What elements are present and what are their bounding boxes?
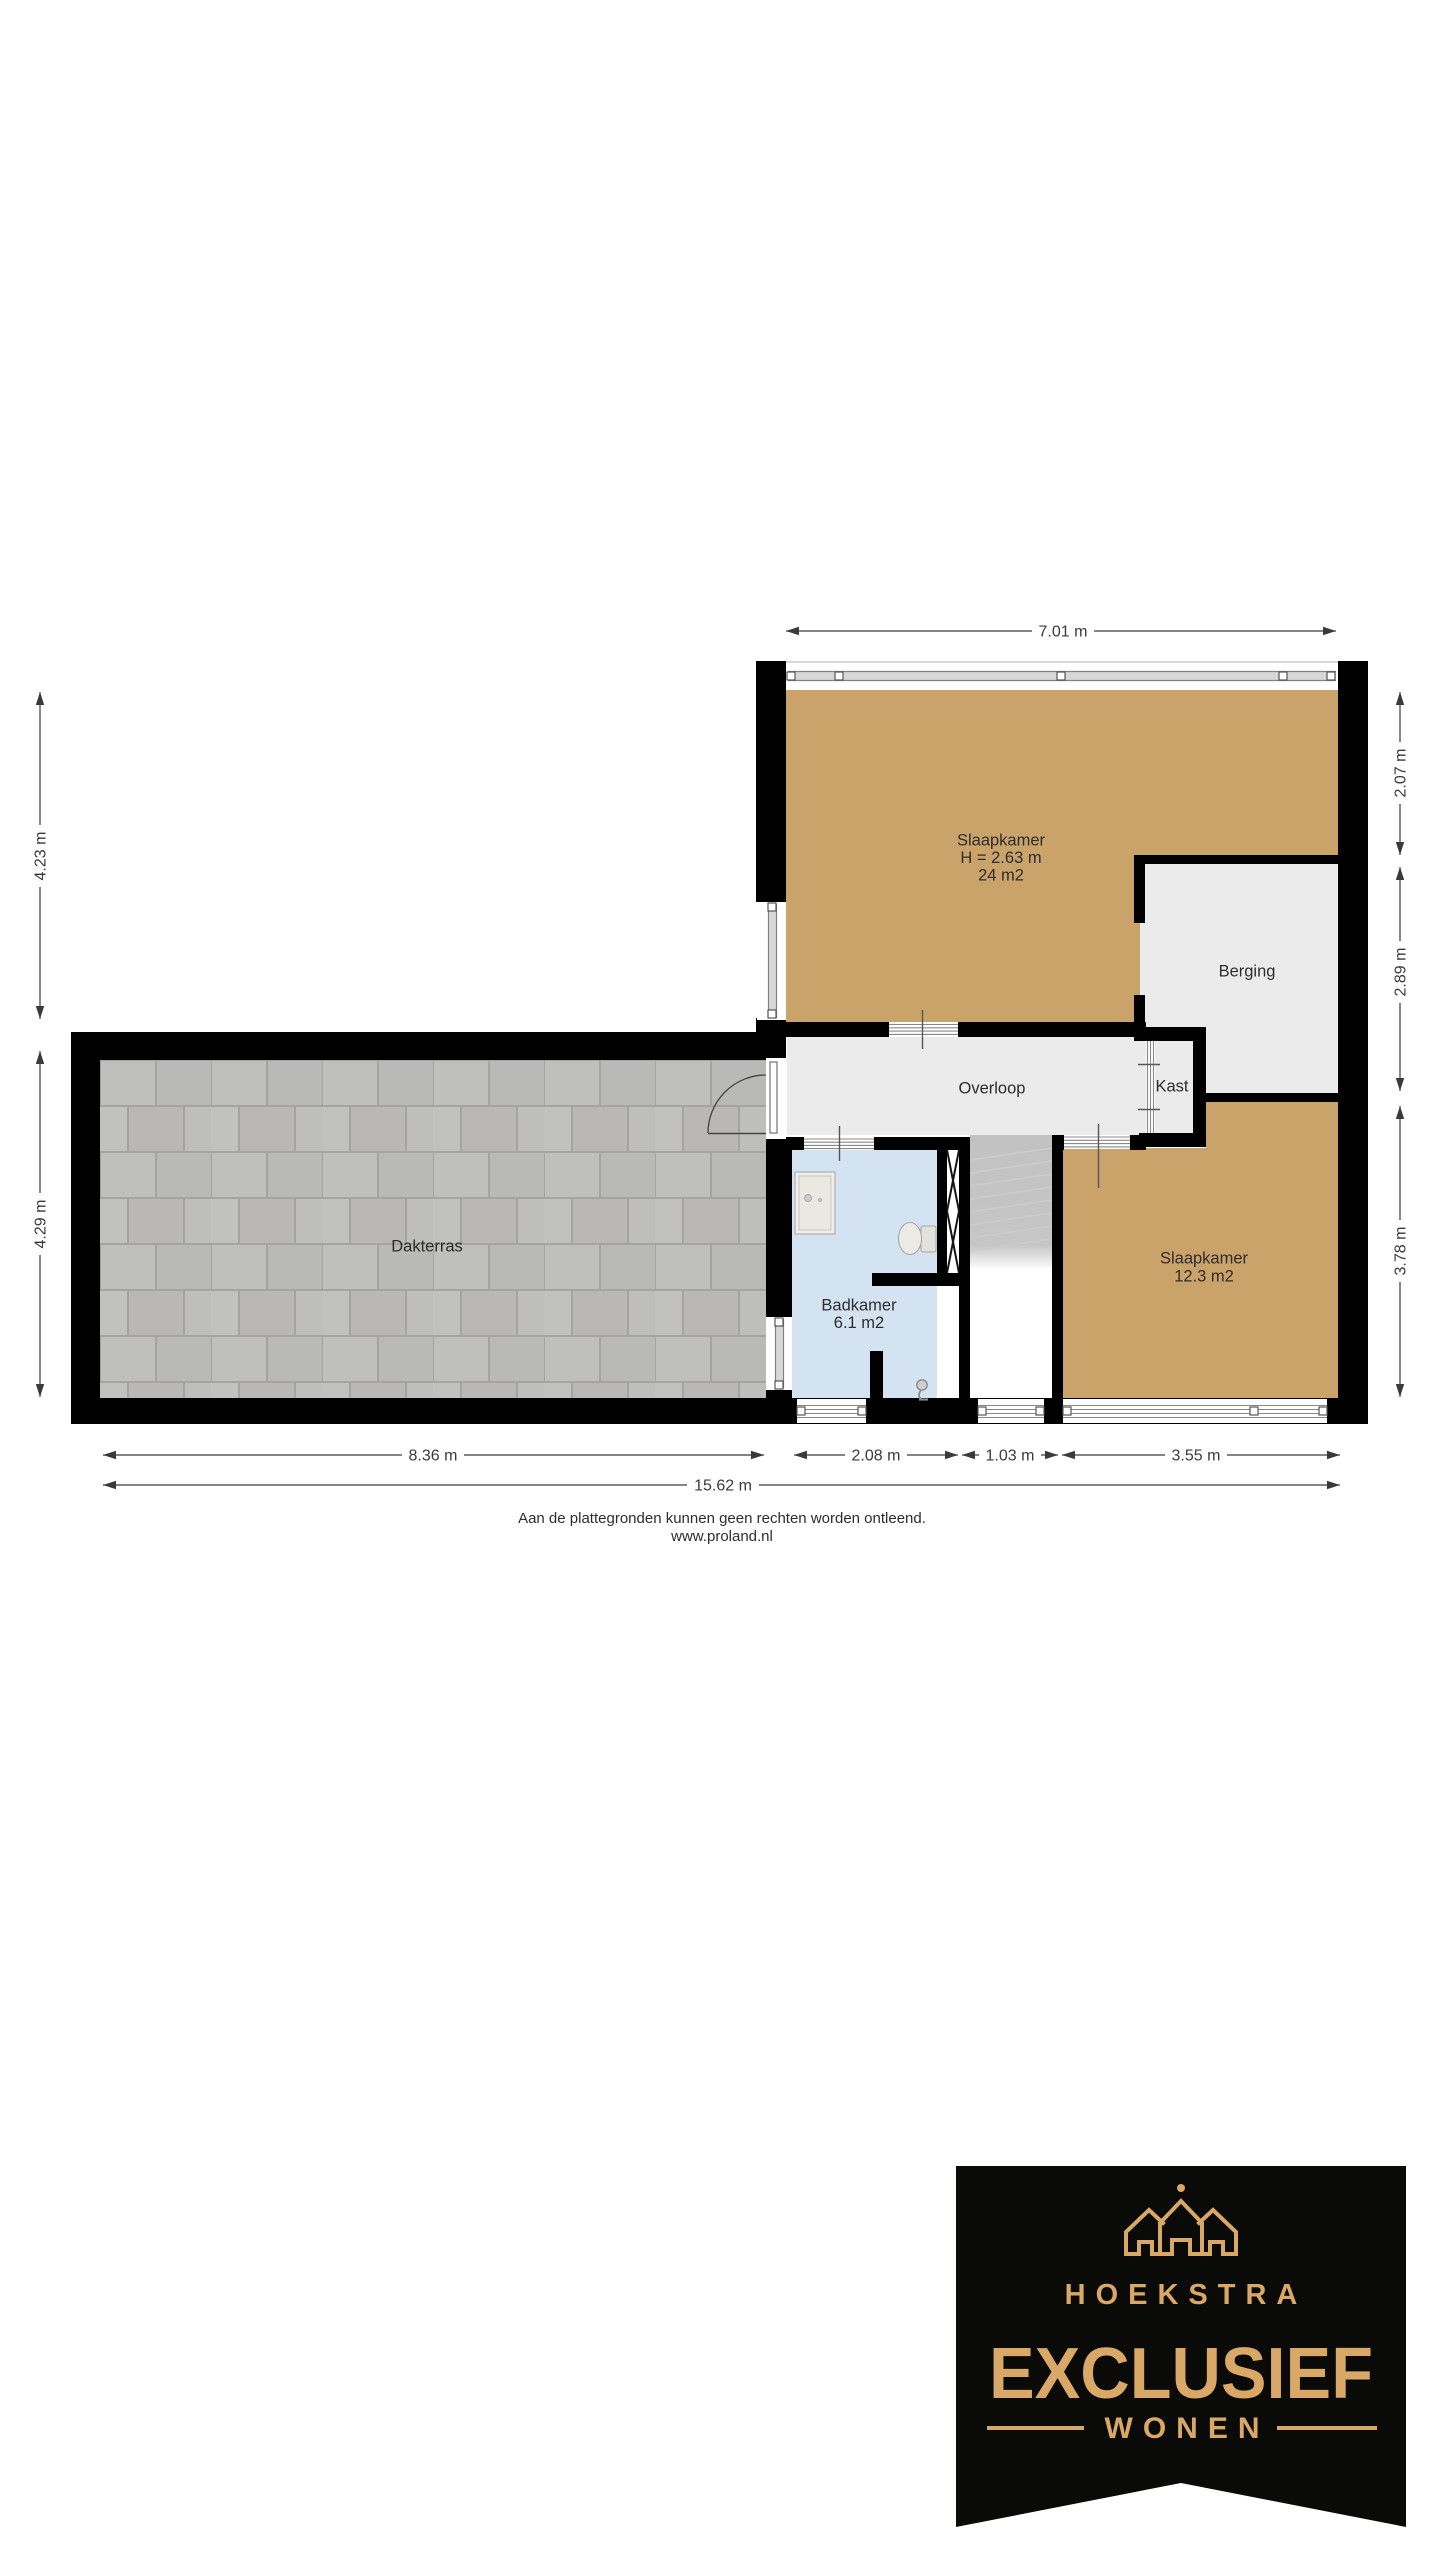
svg-text:Aan de plattegronden kunnen ge: Aan de plattegronden kunnen geen rechten… bbox=[518, 1510, 926, 1527]
svg-text:6.1 m2: 6.1 m2 bbox=[834, 1314, 884, 1332]
svg-text:Dakterras: Dakterras bbox=[391, 1238, 463, 1256]
svg-text:Badkamer: Badkamer bbox=[821, 1297, 897, 1315]
svg-text:WONEN: WONEN bbox=[1105, 2412, 1270, 2445]
svg-text:4.23 m: 4.23 m bbox=[33, 832, 50, 881]
svg-text:HOEKSTRA: HOEKSTRA bbox=[1065, 2279, 1308, 2311]
svg-text:Overloop: Overloop bbox=[959, 1080, 1026, 1098]
svg-text:8.36 m: 8.36 m bbox=[409, 1448, 458, 1465]
svg-text:2.07 m: 2.07 m bbox=[1393, 749, 1410, 798]
svg-text:7.01 m: 7.01 m bbox=[1039, 624, 1088, 641]
svg-text:Kast: Kast bbox=[1155, 1078, 1188, 1096]
svg-text:15.62 m: 15.62 m bbox=[694, 1478, 752, 1495]
svg-text:2.08 m: 2.08 m bbox=[852, 1448, 901, 1465]
svg-text:www.proland.nl: www.proland.nl bbox=[670, 1528, 773, 1545]
svg-text:24 m2: 24 m2 bbox=[978, 867, 1024, 885]
svg-text:Berging: Berging bbox=[1219, 963, 1276, 981]
svg-text:H = 2.63 m: H = 2.63 m bbox=[960, 849, 1041, 867]
svg-text:3.55 m: 3.55 m bbox=[1172, 1448, 1221, 1465]
svg-text:12.3 m2: 12.3 m2 bbox=[1174, 1268, 1234, 1286]
svg-text:3.78 m: 3.78 m bbox=[1393, 1227, 1410, 1276]
svg-text:2.89 m: 2.89 m bbox=[1393, 948, 1410, 997]
svg-text:EXCLUSIEF: EXCLUSIEF bbox=[989, 2334, 1373, 2414]
svg-text:4.29 m: 4.29 m bbox=[33, 1200, 50, 1249]
svg-text:Slaapkamer: Slaapkamer bbox=[957, 832, 1046, 850]
svg-text:1.03 m: 1.03 m bbox=[986, 1448, 1035, 1465]
svg-text:Slaapkamer: Slaapkamer bbox=[1160, 1250, 1249, 1268]
